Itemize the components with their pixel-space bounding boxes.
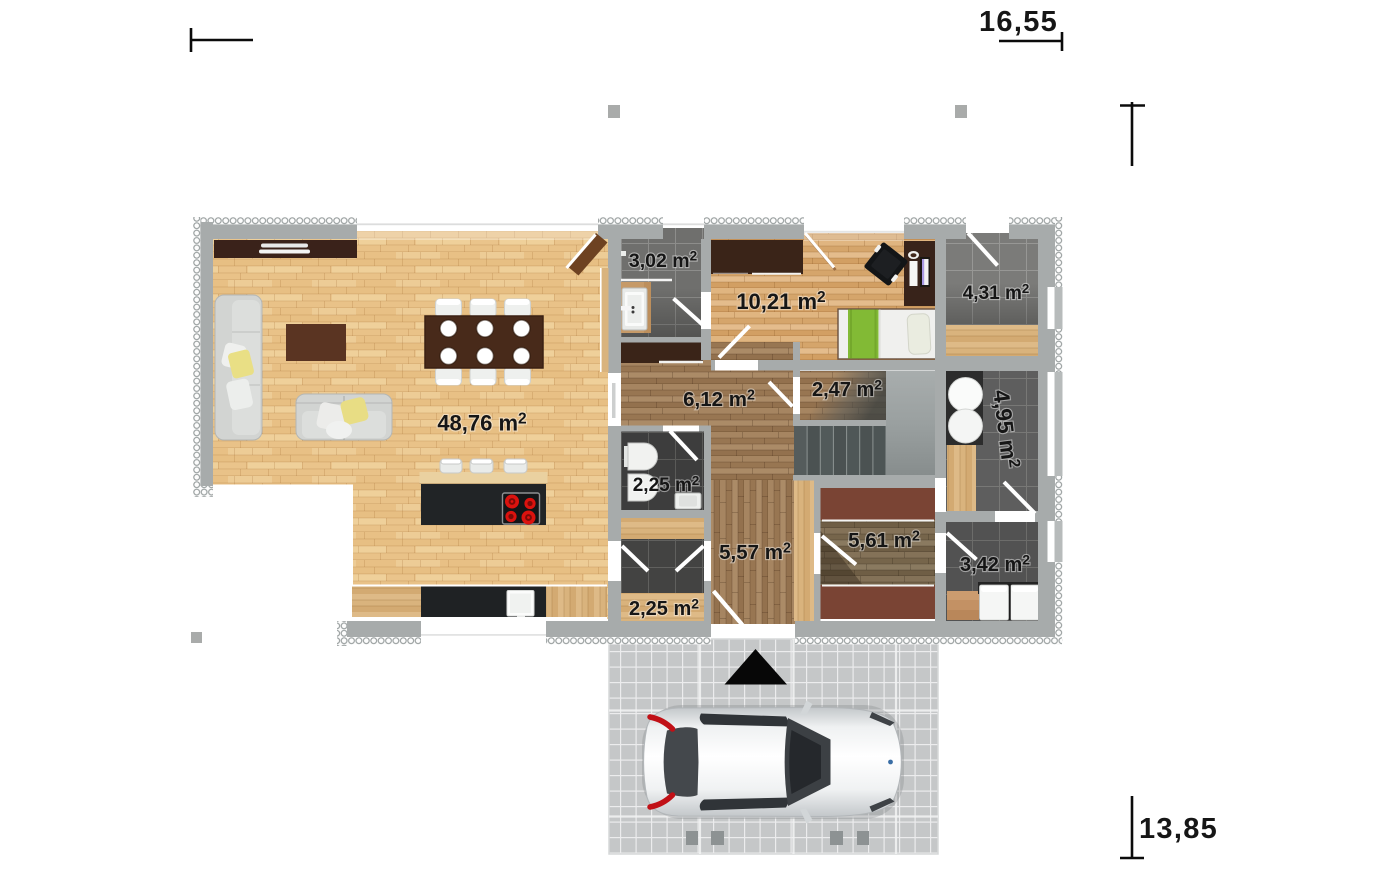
svg-text:6,12 m2: 6,12 m2 [683, 387, 755, 411]
svg-text:3,42 m2: 3,42 m2 [960, 552, 1030, 577]
svg-text:4,31 m2: 4,31 m2 [963, 281, 1030, 304]
svg-text:2,47 m2: 2,47 m2 [812, 377, 882, 402]
svg-text:16,55: 16,55 [979, 6, 1058, 38]
svg-text:5,57 m2: 5,57 m2 [719, 540, 791, 564]
svg-text:48,76 m2: 48,76 m2 [437, 411, 526, 436]
svg-text:3,02 m2: 3,02 m2 [629, 249, 698, 272]
svg-text:5,61 m2: 5,61 m2 [848, 528, 920, 552]
svg-text:2,25 m2: 2,25 m2 [633, 473, 700, 496]
svg-text:10,21 m2: 10,21 m2 [736, 289, 825, 314]
svg-text:13,85: 13,85 [1139, 813, 1218, 845]
svg-text:2,25 m2: 2,25 m2 [629, 596, 699, 621]
